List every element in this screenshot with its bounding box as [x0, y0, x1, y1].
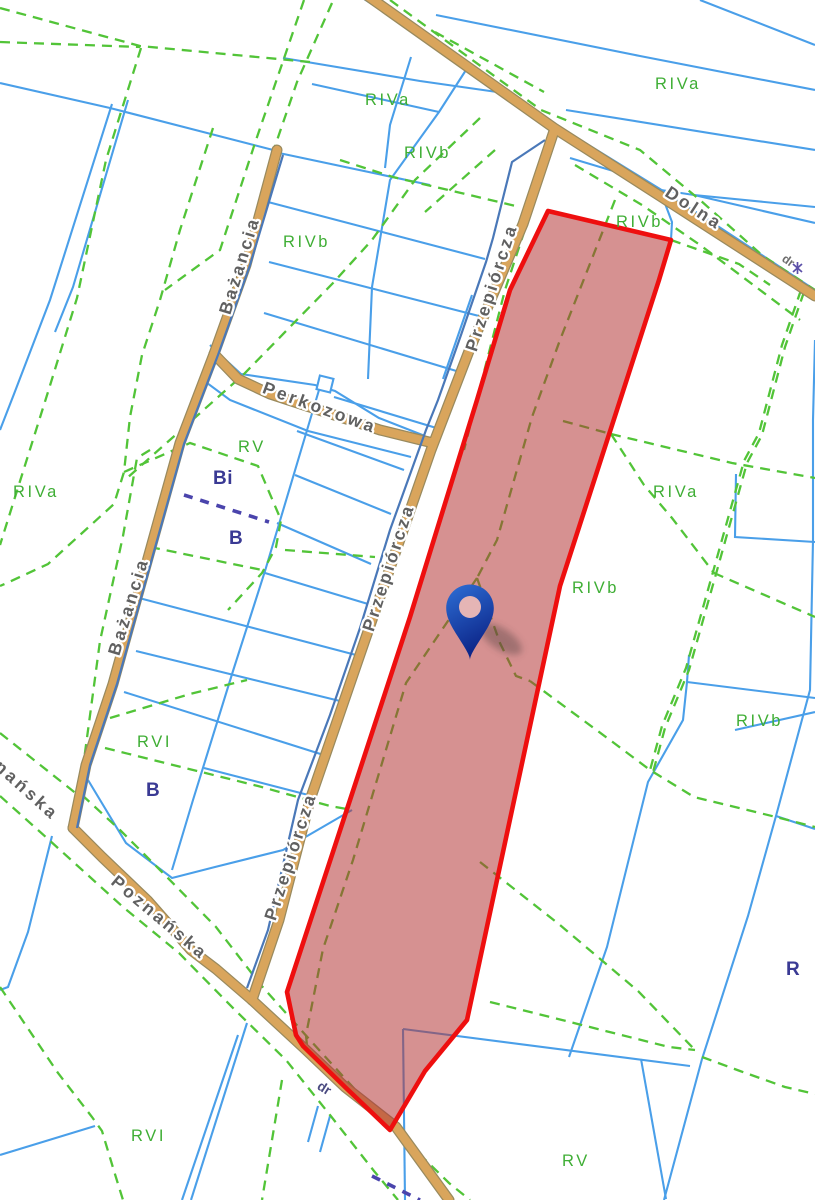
svg-text:RIVa: RIVa: [655, 75, 701, 93]
svg-text:B: B: [229, 528, 243, 549]
svg-text:RV: RV: [562, 1152, 590, 1170]
svg-text:RIVb: RIVb: [283, 233, 330, 251]
svg-text:B: B: [146, 780, 160, 801]
svg-text:Bi: Bi: [213, 468, 233, 489]
svg-text:RIVa: RIVa: [13, 483, 59, 501]
svg-text:RIVb: RIVb: [572, 579, 619, 597]
svg-text:RV: RV: [238, 438, 266, 456]
svg-text:RIVb: RIVb: [736, 712, 783, 730]
svg-text:RIVb: RIVb: [404, 144, 451, 162]
svg-text:RVI: RVI: [137, 733, 172, 751]
svg-text:RVI: RVI: [131, 1127, 166, 1145]
svg-text:RIVb: RIVb: [616, 213, 663, 231]
svg-text:RIVa: RIVa: [653, 483, 699, 501]
svg-text:RIVa: RIVa: [365, 91, 411, 109]
svg-text:R: R: [786, 959, 800, 980]
